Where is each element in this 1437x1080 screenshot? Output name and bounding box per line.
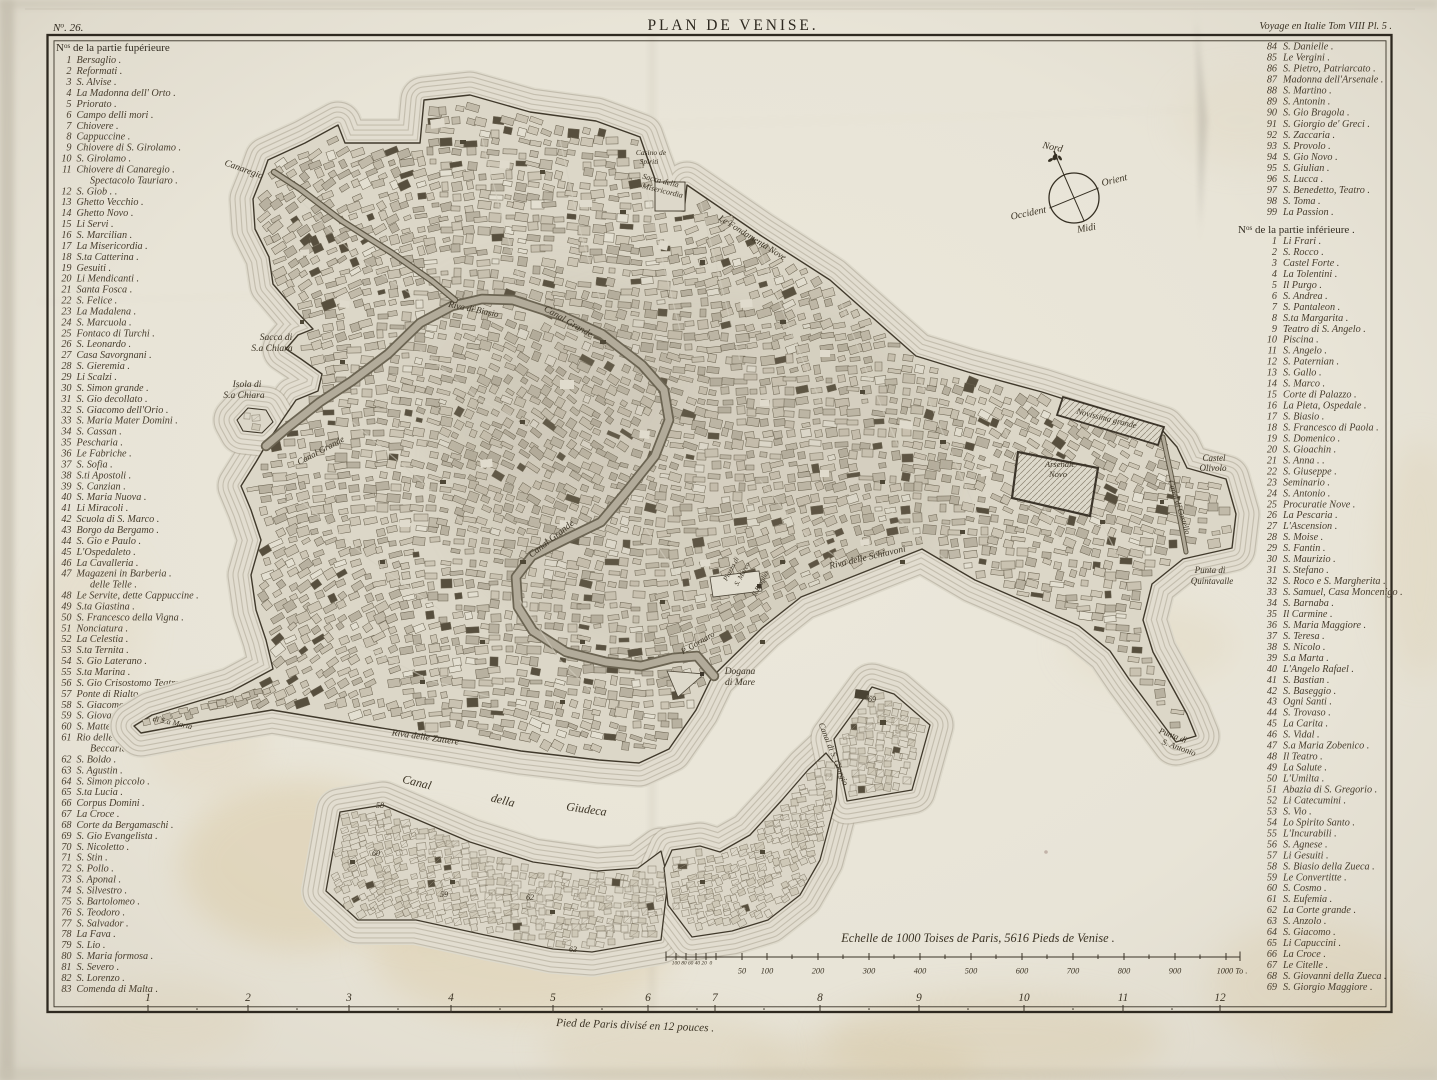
svg-text:4La Madonna dell' Orto .: 4La Madonna dell' Orto . — [66, 88, 175, 99]
svg-text:S.a Chiara: S.a Chiara — [223, 391, 264, 401]
svg-text:62: 62 — [526, 893, 534, 902]
svg-text:65S.ta Lucia .: 65S.ta Lucia . — [61, 787, 123, 798]
svg-text:300: 300 — [862, 967, 876, 976]
svg-text:Voyage en Italie Tom VIII Pl.: Voyage en Italie Tom VIII Pl. 5 . — [1259, 21, 1392, 32]
svg-text:9Teatro di S. Angelo .: 9Teatro di S. Angelo . — [1272, 324, 1366, 335]
svg-text:95S. Giulian .: 95S. Giulian . — [1267, 163, 1330, 174]
svg-text:69S. Giorgio Maggiore .: 69S. Giorgio Maggiore . — [1267, 982, 1373, 993]
svg-text:63S. Agustin .: 63S. Agustin . — [61, 765, 122, 776]
svg-text:12S. Giob . .: 12S. Giob . . — [61, 186, 117, 197]
svg-text:Spiriti: Spiriti — [640, 157, 659, 166]
svg-text:78La Fava .: 78La Fava . — [61, 929, 116, 940]
svg-text:72S. Pollo .: 72S. Pollo . — [61, 864, 114, 875]
svg-text:39S.a Marta .: 39S.a Marta . — [1266, 653, 1329, 664]
svg-text:Spectacolo Tauriaro .: Spectacolo Tauriaro . — [90, 175, 178, 186]
svg-text:3: 3 — [345, 992, 352, 1004]
svg-text:62S. Boldo .: 62S. Boldo . — [61, 754, 116, 765]
svg-text:11S. Angelo .: 11S. Angelo . — [1268, 346, 1327, 357]
svg-text:9Chiovere di S. Girolamo .: 9Chiovere di S. Girolamo . — [66, 143, 181, 154]
svg-text:60S. Cosmo .: 60S. Cosmo . — [1267, 883, 1327, 894]
svg-text:53S.ta Ternita .: 53S.ta Ternita . — [61, 645, 128, 656]
svg-text:58S. Biasio della Zueca .: 58S. Biasio della Zueca . — [1267, 861, 1375, 872]
svg-text:50L'Umilta .: 50L'Umilta . — [1267, 774, 1324, 785]
svg-text:47S.a Maria Zobenico .: 47S.a Maria Zobenico . — [1267, 741, 1370, 752]
svg-text:47Magazeni in Barberia .: 47Magazeni in Barberia . — [61, 569, 171, 580]
svg-text:Olivolo: Olivolo — [1200, 463, 1227, 473]
svg-text:96S. Lucca .: 96S. Lucca . — [1267, 174, 1323, 185]
svg-text:34S. Cassan .: 34S. Cassan . — [60, 427, 121, 438]
svg-text:17S. Biasio .: 17S. Biasio . — [1267, 412, 1325, 423]
svg-text:32S. Roco e S. Margherita .: 32S. Roco e S. Margherita . — [1266, 576, 1386, 587]
svg-text:37S. Teresa .: 37S. Teresa . — [1266, 631, 1325, 642]
svg-text:61S. Eufemia .: 61S. Eufemia . — [1267, 894, 1332, 905]
svg-text:53S. Vio .: 53S. Vio . — [1267, 806, 1312, 817]
svg-text:Nos de la partie inférieure .: Nos de la partie inférieure . — [1238, 224, 1355, 236]
svg-text:10: 10 — [1018, 992, 1030, 1004]
svg-text:Echelle de 1000 Toises de Pari: Echelle de 1000 Toises de Paris, 5616 Pi… — [840, 931, 1114, 945]
svg-text:61Rio delle .: 61Rio delle . — [61, 733, 118, 744]
svg-text:23Seminario .: 23Seminario . — [1267, 477, 1330, 488]
svg-text:22S. Felice .: 22S. Felice . — [61, 296, 117, 307]
svg-text:100: 100 — [761, 967, 774, 976]
svg-text:81S. Severo .: 81S. Severo . — [61, 962, 119, 973]
svg-text:41Li Miracoli .: 41Li Miracoli . — [61, 503, 128, 514]
svg-text:68S. Giovanni della Zueca .: 68S. Giovanni della Zueca . — [1267, 971, 1387, 982]
svg-text:Punta di: Punta di — [1194, 565, 1226, 575]
svg-text:1: 1 — [145, 992, 151, 1004]
svg-text:Casino de: Casino de — [636, 148, 667, 157]
svg-text:Arsenale: Arsenale — [1044, 459, 1075, 469]
svg-text:68Corte da Bergamaschi .: 68Corte da Bergamaschi . — [61, 820, 173, 831]
svg-text:87Madonna dell'Arsenale .: 87Madonna dell'Arsenale . — [1267, 75, 1384, 86]
svg-text:8S.ta Margarita .: 8S.ta Margarita . — [1272, 313, 1348, 324]
svg-text:37S. Sofia .: 37S. Sofia . — [60, 459, 112, 470]
svg-text:600: 600 — [1016, 967, 1029, 976]
svg-text:11: 11 — [1118, 992, 1128, 1004]
svg-text:31S. Stefano .: 31S. Stefano . — [1266, 565, 1329, 576]
svg-text:No. 26.: No. 26. — [52, 21, 83, 35]
svg-text:44S. Trovaso .: 44S. Trovaso . — [1267, 708, 1331, 719]
svg-text:30S. Maurizio .: 30S. Maurizio . — [1266, 554, 1336, 565]
svg-text:6Campo delli mori .: 6Campo delli mori . — [66, 110, 153, 121]
svg-text:500: 500 — [965, 967, 978, 976]
svg-text:14S. Marco .: 14S. Marco . — [1267, 379, 1325, 390]
svg-text:69: 69 — [868, 695, 876, 704]
svg-text:73S. Aponal .: 73S. Aponal . — [61, 875, 121, 886]
svg-text:50S. Francesco della Vigna .: 50S. Francesco della Vigna . — [61, 612, 184, 623]
svg-text:60: 60 — [372, 849, 380, 858]
svg-text:100 80 60 40 20 0: 100 80 60 40 20 0 — [672, 961, 713, 967]
svg-text:79S. Lio .: 79S. Lio . — [61, 940, 105, 951]
svg-text:48Le Servite, dette Cappuccine: 48Le Servite, dette Cappuccine . — [61, 591, 198, 602]
svg-text:52La Celestia .: 52La Celestia . — [61, 634, 128, 645]
svg-text:29Li Scalzi .: 29Li Scalzi . — [61, 372, 117, 383]
svg-text:13S. Gallo .: 13S. Gallo . — [1267, 368, 1322, 379]
svg-text:2: 2 — [245, 992, 251, 1004]
svg-text:99La Passion .: 99La Passion . — [1267, 207, 1334, 218]
svg-text:di Mare: di Mare — [725, 678, 755, 688]
svg-text:36Le Fabriche .: 36Le Fabriche . — [60, 449, 131, 460]
svg-text:38S. Nicolo .: 38S. Nicolo . — [1266, 642, 1326, 653]
svg-text:700: 700 — [1067, 967, 1080, 976]
svg-text:56S. Agnese .: 56S. Agnese . — [1267, 839, 1328, 850]
svg-text:7S. Pantaleon .: 7S. Pantaleon . — [1272, 302, 1340, 313]
svg-text:4: 4 — [448, 992, 454, 1004]
svg-text:PLAN DE VENISE.: PLAN DE VENISE. — [647, 17, 818, 34]
svg-text:76S. Teodoro .: 76S. Teodoro . — [61, 907, 125, 918]
svg-text:1000 To .: 1000 To . — [1217, 967, 1248, 976]
svg-text:Castel: Castel — [1202, 453, 1226, 463]
svg-text:900: 900 — [1169, 967, 1182, 976]
svg-text:35Pescharia .: 35Pescharia . — [60, 438, 123, 449]
svg-text:delle Telle .: delle Telle . — [90, 580, 137, 591]
svg-text:77S. Salvador .: 77S. Salvador . — [61, 918, 128, 929]
svg-text:74S. Silvestro .: 74S. Silvestro . — [61, 886, 127, 897]
svg-text:21S. Anna . .: 21S. Anna . . — [1267, 455, 1325, 466]
svg-text:29S. Fantin .: 29S. Fantin . — [1267, 543, 1326, 554]
svg-text:39S. Canzian .: 39S. Canzian . — [60, 481, 125, 492]
svg-text:50: 50 — [738, 967, 747, 976]
svg-text:10Piscina .: 10Piscina . — [1267, 335, 1319, 346]
svg-text:85Le Vergini .: 85Le Vergini . — [1267, 53, 1330, 64]
svg-text:70S. Nicoletto .: 70S. Nicoletto . — [61, 842, 129, 853]
svg-text:51Abazia di S. Gregorio .: 51Abazia di S. Gregorio . — [1267, 785, 1377, 796]
svg-text:98S. Toma .: 98S. Toma . — [1267, 196, 1321, 207]
svg-text:66La Croce .: 66La Croce . — [1267, 949, 1326, 960]
svg-text:67Le Citelle .: 67Le Citelle . — [1267, 960, 1328, 971]
svg-text:35Il Carmine .: 35Il Carmine . — [1266, 609, 1333, 620]
svg-text:67La Croce .: 67La Croce . — [61, 809, 119, 820]
svg-text:6: 6 — [645, 992, 651, 1004]
svg-text:Isola di: Isola di — [232, 380, 262, 390]
svg-text:93S. Provolo .: 93S. Provolo . — [1267, 141, 1331, 152]
svg-text:69S. Gio Evangelista .: 69S. Gio Evangelista . — [61, 831, 157, 842]
svg-text:34S. Barnaba .: 34S. Barnaba . — [1266, 598, 1334, 609]
svg-text:11Chiovere di Canaregio .: 11Chiovere di Canaregio . — [62, 164, 175, 175]
svg-text:8: 8 — [817, 992, 823, 1004]
svg-text:19Gesuiti .: 19Gesuiti . — [61, 263, 111, 274]
svg-text:15Li Servi .: 15Li Servi . — [61, 219, 113, 230]
svg-text:32S. Giacomo dell'Orio .: 32S. Giacomo dell'Orio . — [60, 405, 168, 416]
svg-text:91S. Giorgio de' Greci .: 91S. Giorgio de' Greci . — [1267, 119, 1370, 130]
svg-text:97S. Benedetto, Teatro .: 97S. Benedetto, Teatro . — [1267, 185, 1370, 196]
svg-text:Dogana: Dogana — [724, 667, 756, 677]
svg-text:82S. Lorenzo .: 82S. Lorenzo . — [61, 973, 125, 984]
svg-text:86S. Pietro, Patriarcato .: 86S. Pietro, Patriarcato . — [1267, 64, 1376, 75]
svg-text:8Cappuccine .: 8Cappuccine . — [66, 132, 130, 143]
svg-text:48Il Teatro .: 48Il Teatro . — [1267, 752, 1323, 763]
svg-text:49La Salute .: 49La Salute . — [1267, 763, 1327, 774]
svg-text:5: 5 — [550, 992, 556, 1004]
svg-text:63: 63 — [569, 945, 577, 954]
svg-text:46S. Vidal .: 46S. Vidal . — [1267, 730, 1320, 741]
svg-text:Nos de la partie fupérieure: Nos de la partie fupérieure — [56, 42, 170, 54]
svg-text:89S. Antonin .: 89S. Antonin . — [1267, 97, 1331, 108]
svg-text:800: 800 — [1118, 967, 1131, 976]
svg-text:43Borgo da Bergamo .: 43Borgo da Bergamo . — [61, 525, 159, 536]
svg-text:59: 59 — [440, 890, 448, 899]
svg-text:33S. Samuel, Casa Moncenigo .: 33S. Samuel, Casa Moncenigo . — [1266, 587, 1403, 598]
svg-text:33S. Maria Mater Domini .: 33S. Maria Mater Domini . — [60, 416, 178, 427]
svg-text:400: 400 — [914, 967, 927, 976]
svg-text:63S. Anzolo .: 63S. Anzolo . — [1267, 916, 1327, 927]
svg-text:Quintavalle: Quintavalle — [1191, 576, 1234, 586]
svg-text:Sacca di: Sacca di — [260, 333, 293, 343]
svg-text:58: 58 — [376, 801, 384, 810]
svg-text:45La Carita .: 45La Carita . — [1267, 719, 1328, 730]
svg-text:88S. Martino .: 88S. Martino . — [1267, 86, 1332, 97]
svg-text:38S.ti Apostoli .: 38S.ti Apostoli . — [60, 470, 131, 481]
svg-text:Novo: Novo — [1048, 469, 1067, 479]
svg-text:12: 12 — [1214, 992, 1226, 1004]
svg-text:24S. Antonio .: 24S. Antonio . — [1267, 488, 1331, 499]
svg-text:S.a Chiara: S.a Chiara — [251, 344, 292, 354]
svg-text:83Comenda di Malta .: 83Comenda di Malta . — [61, 984, 158, 995]
svg-text:43Ogni Santi .: 43Ogni Santi . — [1267, 697, 1332, 708]
svg-text:28S. Moise .: 28S. Moise . — [1267, 532, 1323, 543]
svg-text:57Li Gesuiti .: 57Li Gesuiti . — [1267, 850, 1329, 861]
svg-text:18S. Francesco di Paola .: 18S. Francesco di Paola . — [1267, 423, 1379, 434]
svg-text:9: 9 — [916, 992, 922, 1004]
svg-text:200: 200 — [812, 967, 825, 976]
svg-text:71S. Stin .: 71S. Stin . — [61, 853, 107, 864]
svg-text:41S. Bastian .: 41S. Bastian . — [1267, 675, 1330, 686]
svg-text:51Nonciatura .: 51Nonciatura . — [61, 623, 128, 634]
svg-text:42Scuola di S. Marco .: 42Scuola di S. Marco . — [61, 514, 159, 525]
svg-text:84S. Danielle .: 84S. Danielle . — [1267, 42, 1334, 53]
